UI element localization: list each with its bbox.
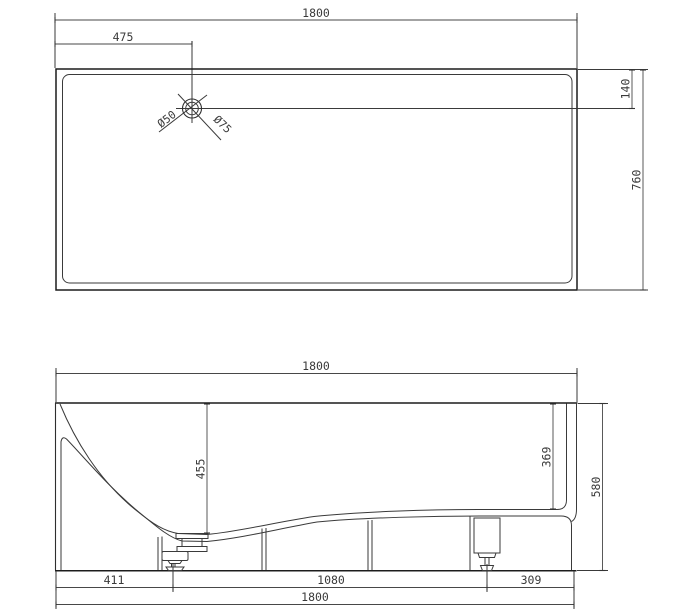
dim-height: 580 [589, 477, 603, 498]
dim-base-width: 1800 [301, 590, 329, 604]
dim-left-foot-offset: 411 [104, 573, 125, 587]
dim-drain-from-left: 475 [113, 30, 134, 44]
dim-feet-spacing: 1080 [317, 573, 345, 587]
drawing-background [0, 0, 700, 614]
dim-top-width: 1800 [302, 6, 330, 20]
dim-side-width: 1800 [302, 359, 330, 373]
dim-interior-depth-at-drain: 455 [194, 459, 208, 480]
dim-right-foot-offset: 309 [521, 573, 542, 587]
technical-drawing-page: 1800 475 Ø50 Ø75 [0, 0, 700, 614]
dim-interior-depth-right: 369 [540, 447, 554, 468]
bathtub-technical-drawing: 1800 475 Ø50 Ø75 [0, 0, 700, 614]
dim-depth: 760 [630, 170, 644, 191]
dim-drain-from-top: 140 [619, 79, 633, 100]
